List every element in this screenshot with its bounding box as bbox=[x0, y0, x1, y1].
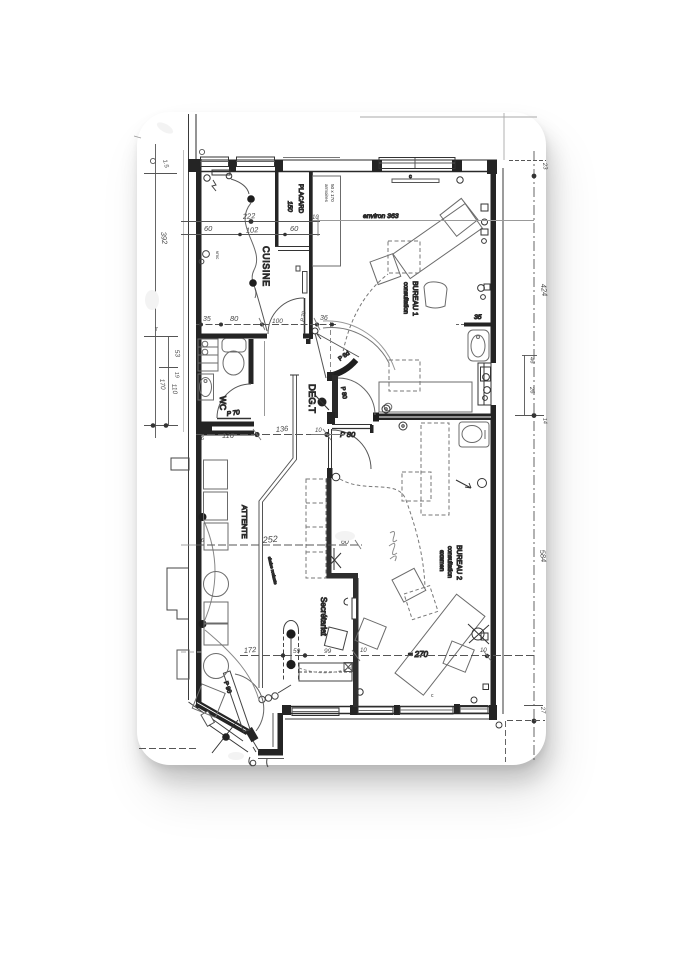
svg-text:chaise roulante: chaise roulante bbox=[267, 556, 278, 585]
svg-text:P 80: P 80 bbox=[339, 386, 347, 400]
svg-text:BUREAU 1: BUREAU 1 bbox=[411, 281, 418, 316]
svg-text:ATTENTE: ATTENTE bbox=[240, 505, 249, 539]
svg-text:1.5: 1.5 bbox=[161, 159, 169, 169]
svg-text:53: 53 bbox=[173, 349, 181, 357]
svg-text:172: 172 bbox=[243, 645, 257, 655]
svg-text:46: 46 bbox=[528, 357, 535, 365]
svg-text:110: 110 bbox=[170, 383, 178, 394]
svg-text:P 8d: P 8d bbox=[338, 351, 351, 363]
svg-text:60: 60 bbox=[290, 224, 299, 233]
svg-text:392: 392 bbox=[159, 231, 169, 245]
svg-text:584: 584 bbox=[538, 549, 548, 562]
svg-text:14: 14 bbox=[541, 418, 548, 425]
svg-text:116: 116 bbox=[222, 431, 235, 440]
svg-text:100: 100 bbox=[272, 318, 283, 325]
svg-text:PLACARD: PLACARD bbox=[297, 184, 304, 214]
svg-text:BUREAU 2: BUREAU 2 bbox=[455, 545, 462, 580]
svg-text:60: 60 bbox=[204, 224, 213, 233]
svg-text:59: 59 bbox=[293, 648, 301, 655]
svg-text:≈ 270: ≈ 270 bbox=[408, 650, 429, 659]
svg-text:P 70: P 70 bbox=[226, 409, 240, 418]
svg-text:6: 6 bbox=[201, 436, 205, 442]
svg-text:23: 23 bbox=[541, 162, 548, 171]
svg-text:80: 80 bbox=[230, 314, 239, 323]
svg-text:252: 252 bbox=[261, 534, 278, 545]
svg-text:DEG.T: DEG.T bbox=[306, 384, 317, 413]
svg-text:armoires: armoires bbox=[324, 184, 329, 203]
svg-text:consultation: consultation bbox=[446, 546, 452, 578]
svg-text:136: 136 bbox=[275, 424, 289, 434]
svg-text:environ 363: environ 363 bbox=[363, 213, 399, 220]
svg-text:Secrétariat: Secrétariat bbox=[319, 597, 328, 636]
svg-text:CUISINE: CUISINE bbox=[261, 246, 271, 287]
svg-text:102: 102 bbox=[246, 225, 260, 235]
svg-text:10: 10 bbox=[360, 648, 367, 654]
svg-text:27: 27 bbox=[539, 706, 546, 715]
svg-text:vmc: vmc bbox=[215, 251, 220, 260]
svg-text:10: 10 bbox=[315, 428, 322, 434]
svg-text:19: 19 bbox=[173, 372, 180, 379]
svg-text:7: 7 bbox=[155, 327, 158, 333]
svg-text:424: 424 bbox=[539, 283, 549, 296]
svg-text:35: 35 bbox=[474, 314, 482, 321]
svg-text:26: 26 bbox=[528, 386, 535, 395]
svg-text:170: 170 bbox=[158, 378, 166, 390]
svg-text:150: 150 bbox=[286, 201, 293, 212]
svg-text:P.70: P.70 bbox=[300, 310, 308, 322]
svg-text:WC: WC bbox=[218, 396, 228, 410]
svg-text:36: 36 bbox=[320, 315, 328, 322]
svg-text:c: c bbox=[431, 693, 434, 699]
svg-text:consultation: consultation bbox=[402, 282, 408, 314]
svg-text:222: 222 bbox=[242, 211, 257, 221]
svg-text:99: 99 bbox=[324, 648, 332, 655]
svg-text:35: 35 bbox=[203, 316, 211, 323]
svg-text:c: c bbox=[409, 174, 412, 180]
svg-text:examen: examen bbox=[438, 550, 444, 571]
svg-text:50 x 170: 50 x 170 bbox=[330, 184, 335, 202]
